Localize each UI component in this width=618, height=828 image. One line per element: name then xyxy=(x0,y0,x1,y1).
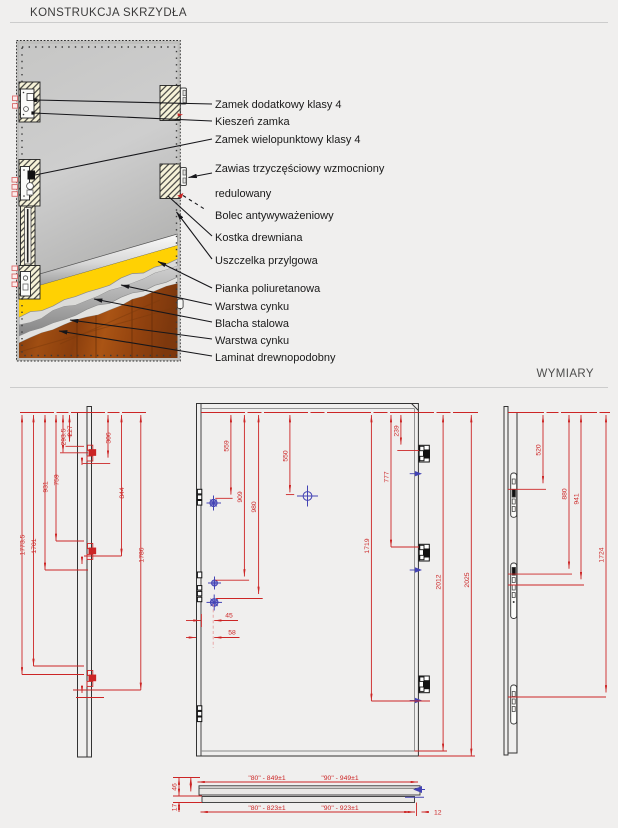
svg-text:980: 980 xyxy=(251,501,258,513)
svg-text:759: 759 xyxy=(54,474,61,486)
svg-text:45: 45 xyxy=(225,613,233,620)
svg-text:12: 12 xyxy=(434,810,442,817)
svg-text:Zamek dodatkowy klasy 4: Zamek dodatkowy klasy 4 xyxy=(215,99,342,111)
svg-text:2012: 2012 xyxy=(436,574,443,589)
svg-text:Uszczelka przylgowa: Uszczelka przylgowa xyxy=(215,255,319,267)
svg-text:1719: 1719 xyxy=(364,538,371,553)
svg-text:"90" - 923±1: "90" - 923±1 xyxy=(321,805,358,812)
svg-text:Blacha stalowa: Blacha stalowa xyxy=(215,318,290,330)
svg-text:1786: 1786 xyxy=(138,547,145,562)
svg-text:559: 559 xyxy=(223,440,230,452)
svg-text:227: 227 xyxy=(67,425,74,437)
svg-text:941: 941 xyxy=(574,493,581,505)
svg-text:Bolec antywyważeniowy: Bolec antywyważeniowy xyxy=(215,210,334,222)
svg-text:909: 909 xyxy=(237,491,244,503)
svg-text:"80" - 849±1: "80" - 849±1 xyxy=(248,775,285,782)
svg-text:Kieszeń zamka: Kieszeń zamka xyxy=(215,116,290,128)
svg-text:1724: 1724 xyxy=(599,547,606,562)
svg-text:Pianka poliuretanowa: Pianka poliuretanowa xyxy=(215,283,321,295)
svg-text:Kostka drewniana: Kostka drewniana xyxy=(215,232,303,244)
svg-text:46: 46 xyxy=(172,783,179,791)
svg-text:Warstwa cynku: Warstwa cynku xyxy=(215,301,289,313)
svg-text:58: 58 xyxy=(228,630,236,637)
svg-text:306: 306 xyxy=(106,432,113,444)
svg-text:"90" - 949±1: "90" - 949±1 xyxy=(321,775,358,782)
svg-text:KONSTRUKCJA SKRZYDŁA: KONSTRUKCJA SKRZYDŁA xyxy=(30,7,187,19)
svg-text:Zamek wielopunktowy klasy 4: Zamek wielopunktowy klasy 4 xyxy=(215,134,361,146)
svg-text:1773.5: 1773.5 xyxy=(20,534,27,555)
svg-text:"80" - 823±1: "80" - 823±1 xyxy=(248,805,285,812)
svg-text:17: 17 xyxy=(172,804,179,812)
svg-text:2025: 2025 xyxy=(464,572,471,587)
svg-text:520: 520 xyxy=(536,444,543,456)
svg-text:931: 931 xyxy=(43,481,50,493)
svg-text:1701: 1701 xyxy=(31,538,38,553)
svg-text:Zawias trzyczęściowy wzmocnion: Zawias trzyczęściowy wzmocniony xyxy=(215,163,385,175)
svg-text:WYMIARY: WYMIARY xyxy=(536,368,594,380)
svg-text:550: 550 xyxy=(282,450,289,462)
svg-text:880: 880 xyxy=(562,488,569,500)
svg-text:Laminat drewnopodobny: Laminat drewnopodobny xyxy=(215,352,336,364)
svg-text:redulowany: redulowany xyxy=(215,188,272,200)
svg-text:844: 844 xyxy=(119,487,126,499)
svg-text:777: 777 xyxy=(384,471,391,483)
svg-text:Warstwa cynku: Warstwa cynku xyxy=(215,335,289,347)
svg-text:239: 239 xyxy=(393,425,400,437)
